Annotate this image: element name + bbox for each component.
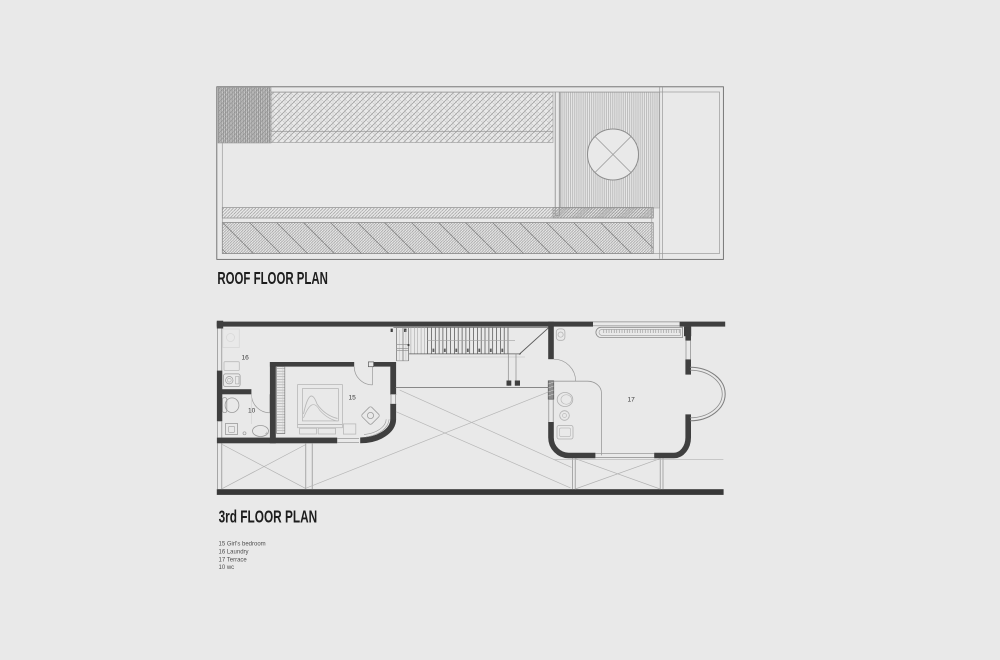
svg-text:17 Terrace: 17 Terrace xyxy=(219,557,248,563)
svg-text:15: 15 xyxy=(349,394,357,401)
svg-text:ROOF FLOOR PLAN: ROOF FLOOR PLAN xyxy=(217,268,328,288)
svg-text:16: 16 xyxy=(242,354,250,361)
svg-text:10 wc: 10 wc xyxy=(219,565,235,571)
svg-text:16 Laundry: 16 Laundry xyxy=(219,550,249,556)
svg-text:10: 10 xyxy=(248,408,256,415)
svg-text:17: 17 xyxy=(628,397,636,404)
svg-text:15 Girl's bedroom: 15 Girl's bedroom xyxy=(219,541,266,547)
svg-text:3rd FLOOR PLAN: 3rd FLOOR PLAN xyxy=(219,507,318,527)
